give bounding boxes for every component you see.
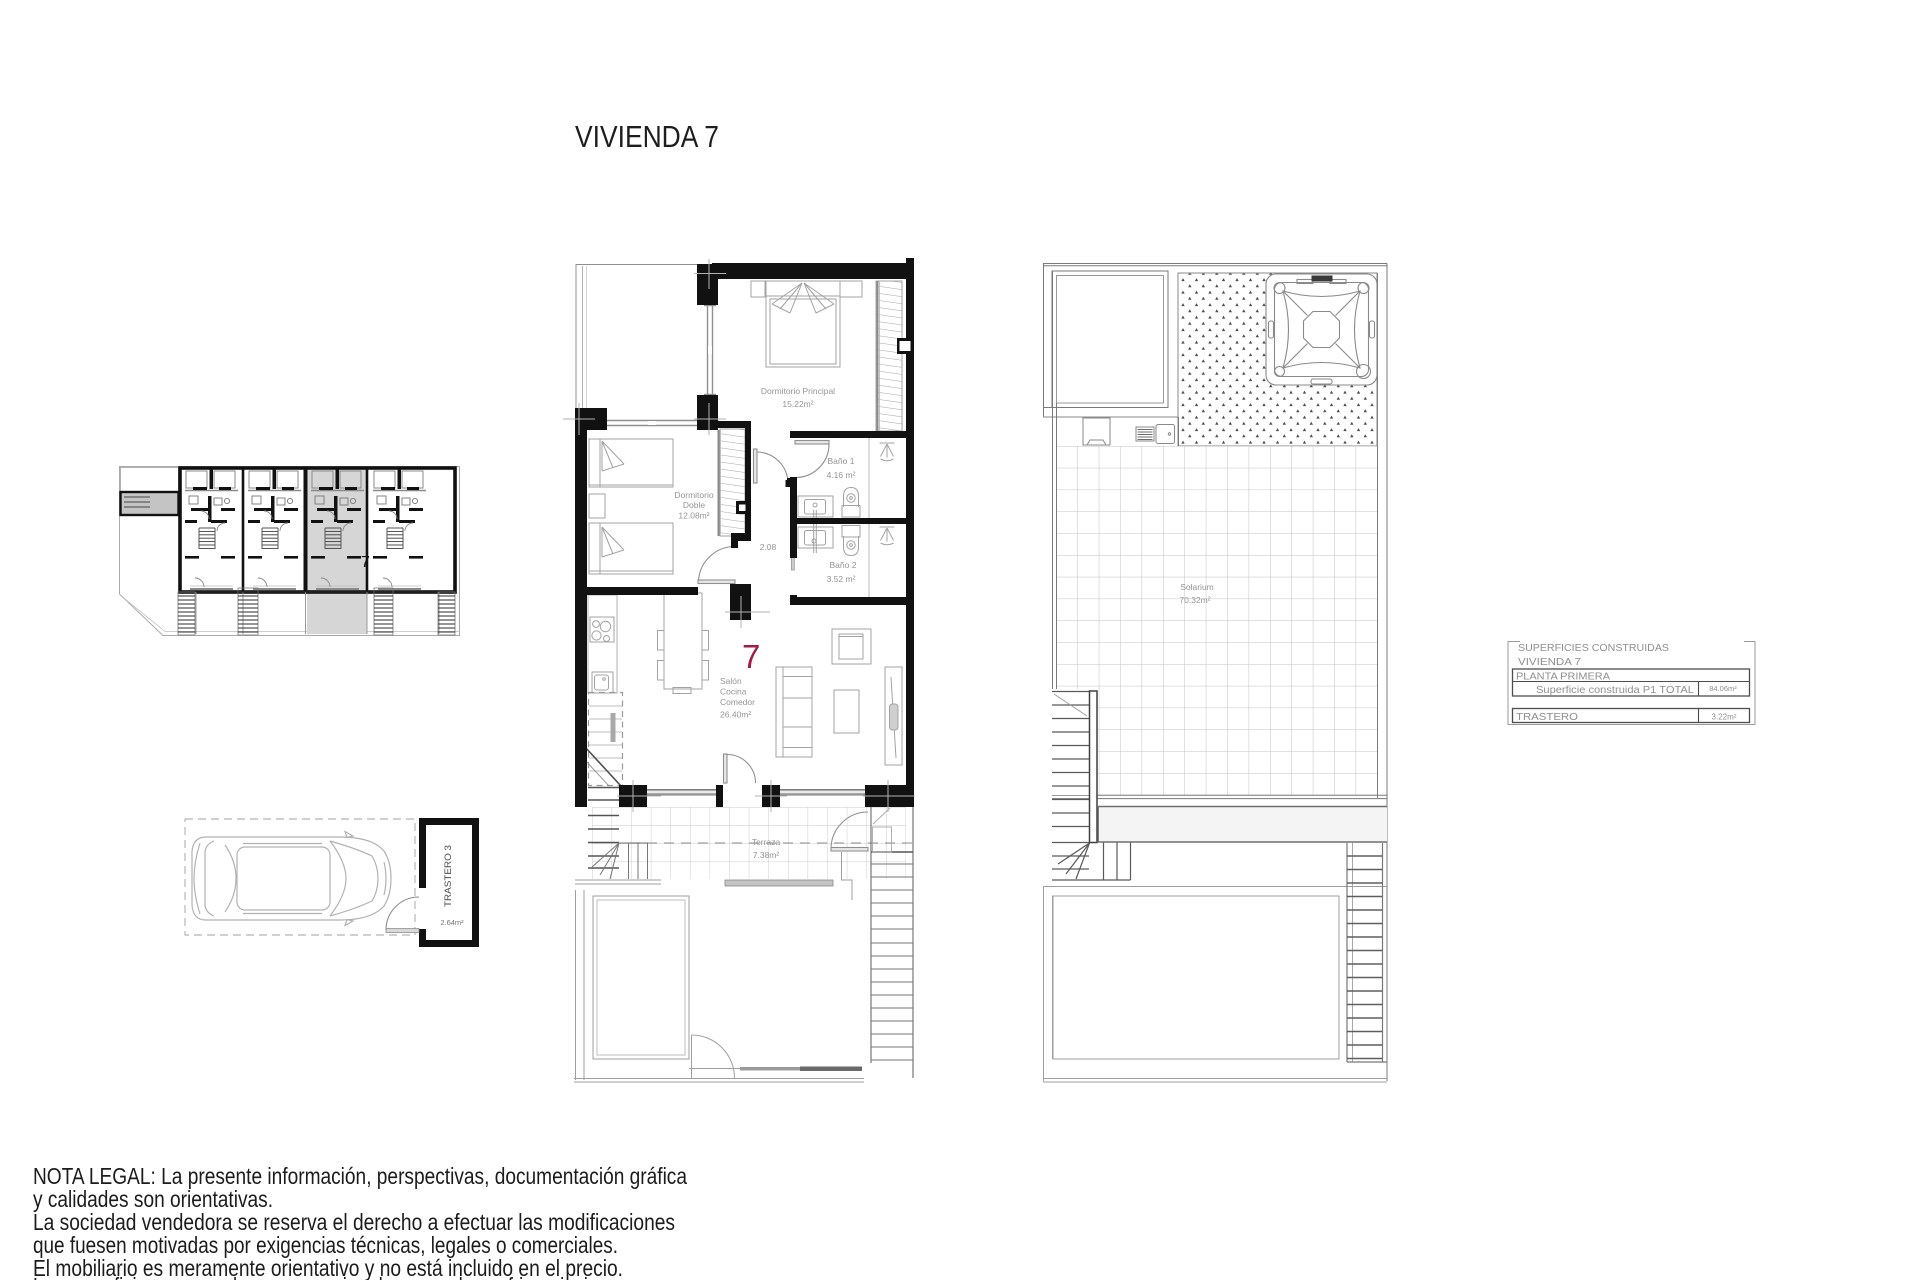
svg-text:Doble: Doble [683,500,705,510]
svg-text:TRASTERO 3: TRASTERO 3 [443,845,454,907]
svg-text:Baño 2: Baño 2 [830,560,857,570]
svg-text:4.16 m²: 4.16 m² [827,470,856,480]
svg-text:Cocina: Cocina [720,687,747,697]
svg-text:Baño 1: Baño 1 [828,456,855,466]
svg-text:Dormitorio Principal: Dormitorio Principal [761,386,835,396]
svg-text:84.06m²: 84.06m² [1709,684,1737,693]
svg-text:TRASTERO: TRASTERO [1516,711,1578,723]
svg-text:7: 7 [742,638,760,675]
svg-text:2.64m²: 2.64m² [440,918,464,927]
svg-text:VIVIENDA 7: VIVIENDA 7 [575,119,719,154]
svg-text:15.22m²: 15.22m² [782,399,813,409]
svg-text:Terraza: Terraza [752,837,781,847]
svg-text:PLANTA PRIMERA: PLANTA PRIMERA [1516,671,1610,683]
svg-text:Solarium: Solarium [1180,582,1214,592]
svg-text:26.40m²: 26.40m² [720,710,751,720]
svg-text:Dormitorio: Dormitorio [674,490,713,500]
svg-text:3.52 m²: 3.52 m² [827,574,856,584]
svg-text:Las superficies expresadas son: Las superficies expresadas son aproximad… [33,1273,633,1280]
svg-text:Superficie construida P1 TOTAL: Superficie construida P1 TOTAL [1536,684,1694,696]
svg-text:Comedor: Comedor [720,697,755,707]
svg-text:70.32m²: 70.32m² [1179,595,1210,605]
svg-text:7: 7 [361,554,370,571]
svg-text:7.38m²: 7.38m² [753,850,780,860]
svg-text:3.22m²: 3.22m² [1712,713,1737,722]
svg-text:12.08m²: 12.08m² [678,511,709,521]
svg-text:2.08: 2.08 [760,542,777,552]
svg-text:VIVIENDA 7: VIVIENDA 7 [1518,656,1581,668]
svg-text:Salón: Salón [720,676,742,686]
svg-text:SUPERFICIES CONSTRUIDAS: SUPERFICIES CONSTRUIDAS [1518,642,1669,654]
